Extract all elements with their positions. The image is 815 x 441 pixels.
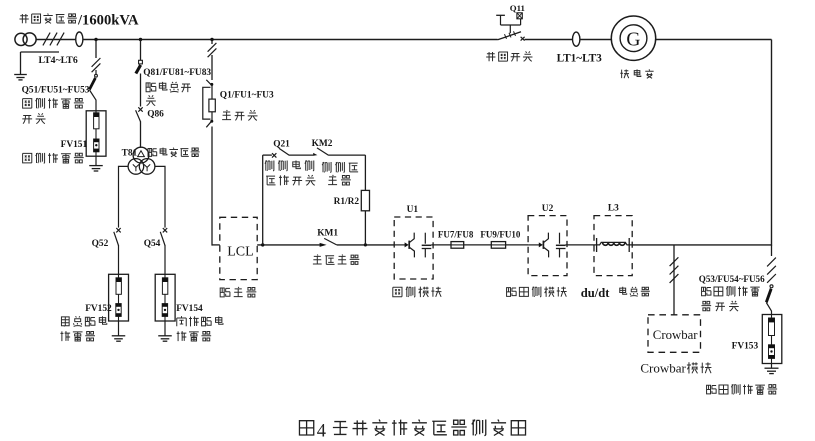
svg-text:Q11: Q11 [510,3,525,13]
svg-text:KM1: KM1 [317,228,338,238]
svg-text:U2: U2 [542,204,554,214]
svg-text:LCL: LCL [227,244,253,259]
svg-text:Crowbar: Crowbar [653,328,699,342]
svg-text:Q1/FU1~FU3: Q1/FU1~FU3 [220,91,274,101]
svg-text:Q21: Q21 [273,140,290,150]
svg-text:R1/R2: R1/R2 [334,197,360,207]
svg-text:Q53/FU54~FU56: Q53/FU54~FU56 [699,274,765,284]
svg-text:Q52: Q52 [92,239,109,249]
svg-text:FV152: FV152 [85,304,112,314]
svg-text:LT4~LT6: LT4~LT6 [39,55,78,66]
svg-text:du/dt: du/dt [581,286,611,300]
svg-text:FV153: FV153 [732,342,759,352]
svg-text:Crowbar: Crowbar [640,361,686,376]
svg-text:FV154: FV154 [176,304,203,314]
svg-text:Q86: Q86 [147,110,164,120]
svg-text:KM2: KM2 [312,139,333,149]
svg-text:FU7/FU8: FU7/FU8 [438,230,474,240]
svg-text:Q81/FU81~FU83: Q81/FU81~FU83 [143,68,211,78]
svg-text:L3: L3 [608,204,619,214]
svg-text:LT1~LT3: LT1~LT3 [557,53,603,65]
svg-text:/1600kVA: /1600kVA [77,13,139,29]
svg-text:U1: U1 [407,205,419,215]
svg-text:Q54: Q54 [144,239,161,249]
svg-text:FU9/FU10: FU9/FU10 [480,230,520,240]
svg-text:Q51/FU51~FU53: Q51/FU51~FU53 [22,85,90,95]
svg-text:FV151: FV151 [61,140,88,150]
svg-text:4: 4 [317,422,326,441]
svg-text:G: G [626,29,640,50]
